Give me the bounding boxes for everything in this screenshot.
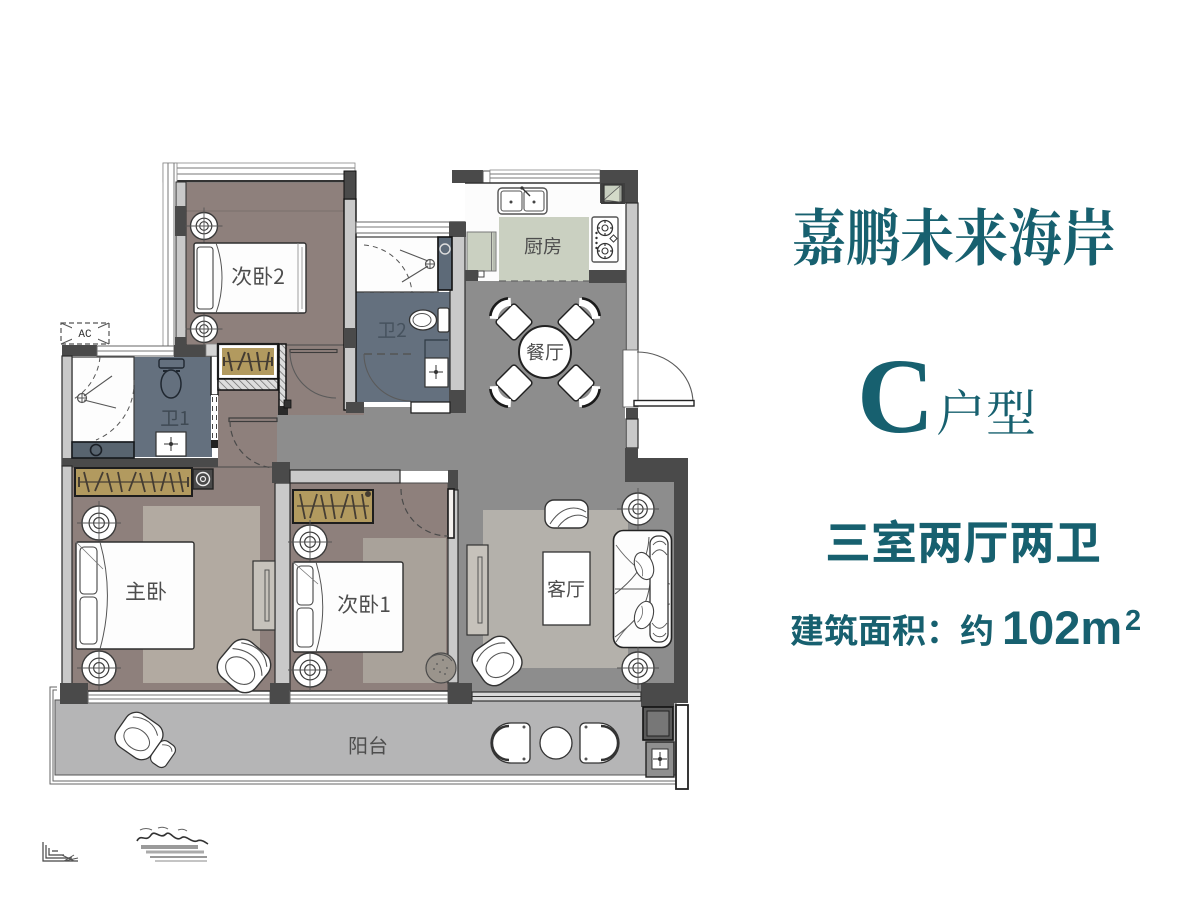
svg-text:AC: AC bbox=[78, 329, 92, 341]
svg-text:102m: 102m bbox=[1002, 601, 1122, 654]
svg-text:2: 2 bbox=[1125, 605, 1141, 637]
svg-text:C: C bbox=[857, 338, 934, 456]
